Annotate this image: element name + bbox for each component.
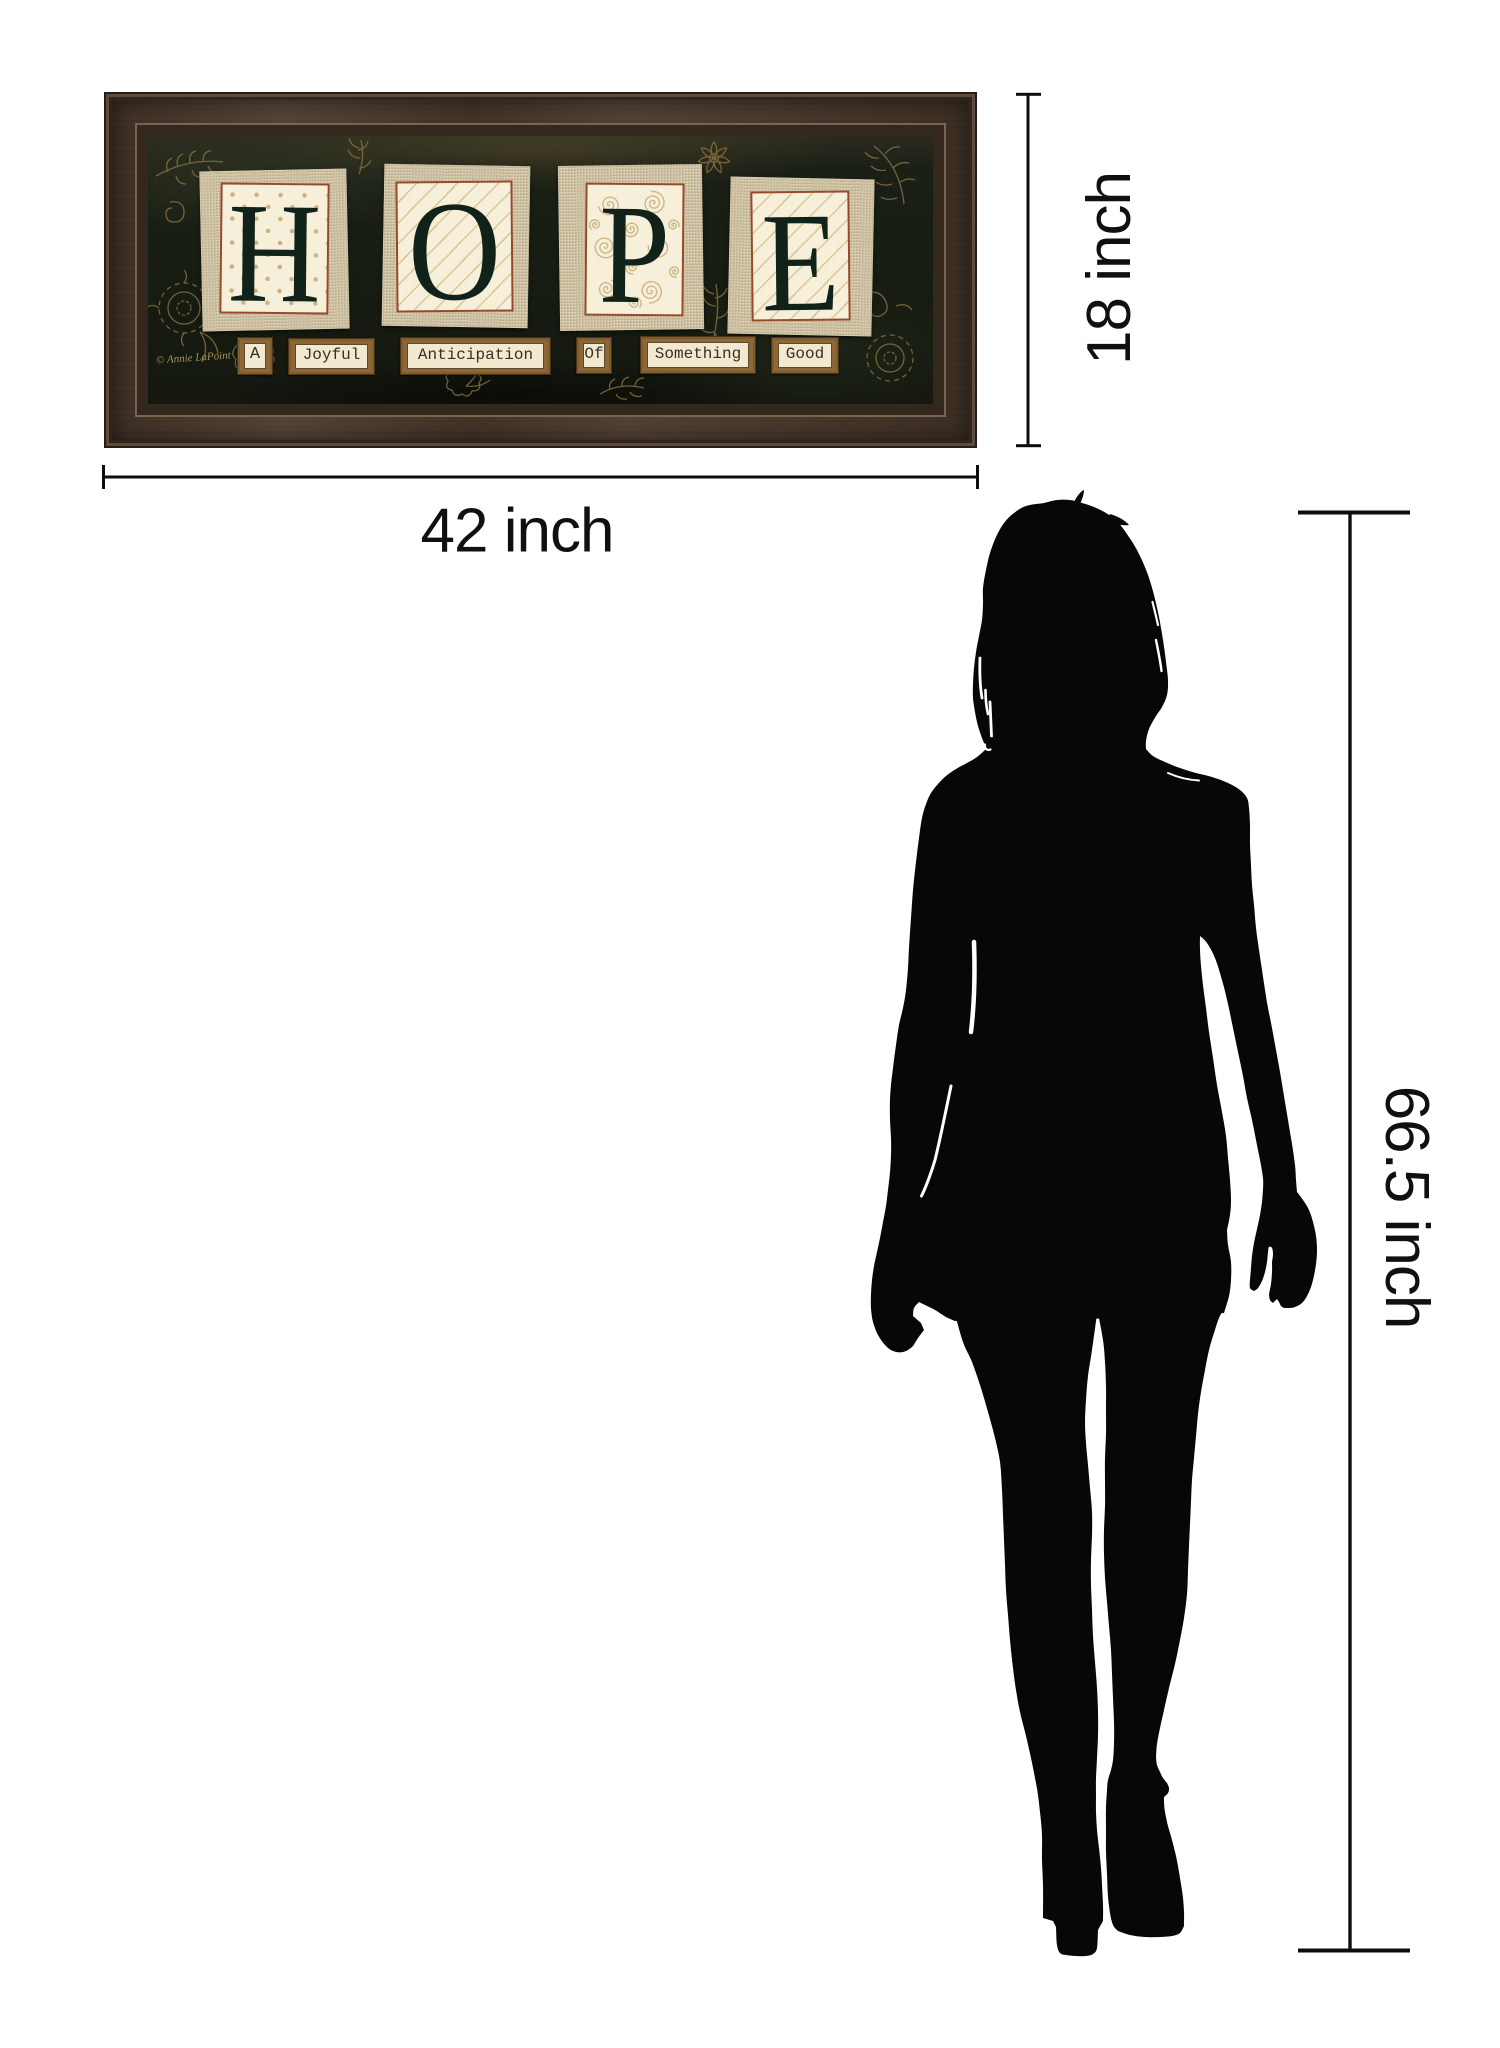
svg-text:66.5 inch: 66.5 inch: [1372, 1086, 1441, 1329]
svg-text:42 inch: 42 inch: [421, 497, 614, 566]
svg-text:18 inch: 18 inch: [1075, 172, 1144, 365]
